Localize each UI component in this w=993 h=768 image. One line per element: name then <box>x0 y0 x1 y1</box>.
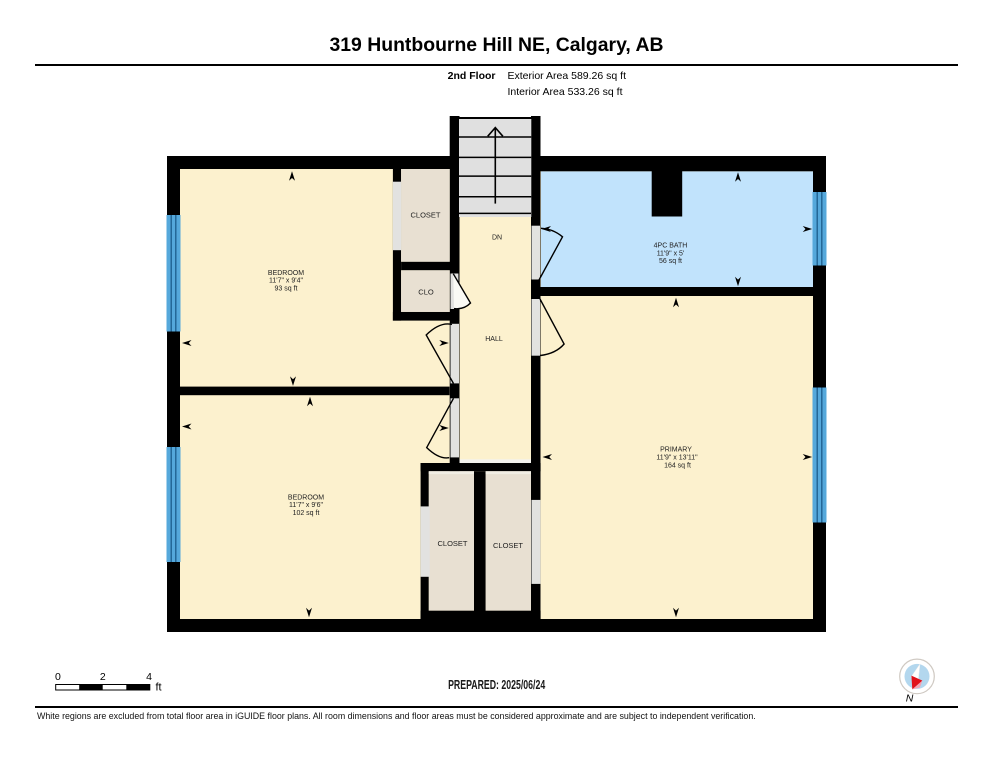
svg-text:4PC BATH: 4PC BATH <box>654 243 688 250</box>
svg-text:11'9" x 13'11": 11'9" x 13'11" <box>656 455 698 462</box>
svg-text:BEDROOM: BEDROOM <box>288 494 324 501</box>
svg-text:CLO: CLO <box>418 287 434 296</box>
svg-text:HALL: HALL <box>485 336 503 343</box>
svg-text:CLOSET: CLOSET <box>493 541 523 550</box>
svg-text:4: 4 <box>146 671 152 683</box>
svg-text:164 sq ft: 164 sq ft <box>664 463 691 470</box>
svg-text:11'9" x 5': 11'9" x 5' <box>657 250 685 257</box>
svg-text:102 sq ft: 102 sq ft <box>293 510 320 517</box>
svg-text:11'7" x 9'4": 11'7" x 9'4" <box>269 278 303 285</box>
svg-text:2: 2 <box>100 671 106 683</box>
svg-text:CLOSET: CLOSET <box>410 211 440 220</box>
svg-text:PRIMARY: PRIMARY <box>660 447 692 454</box>
svg-text:N: N <box>906 693 914 705</box>
svg-text:11'7" x 9'6": 11'7" x 9'6" <box>289 502 323 509</box>
svg-text:CLOSET: CLOSET <box>437 539 467 548</box>
svg-text:0: 0 <box>55 671 61 683</box>
svg-text:BEDROOM: BEDROOM <box>268 270 304 277</box>
svg-text:ft: ft <box>156 682 162 694</box>
svg-text:56 sq ft: 56 sq ft <box>659 258 682 265</box>
svg-text:DN: DN <box>492 234 502 241</box>
svg-text:93 sq ft: 93 sq ft <box>275 285 298 292</box>
